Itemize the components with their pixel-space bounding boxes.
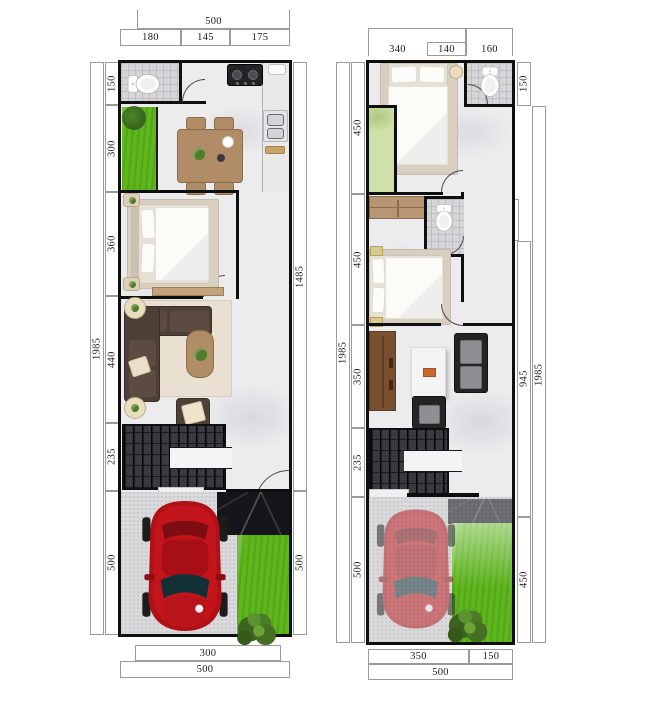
dim-top-seg: 140 <box>427 42 466 56</box>
dim-right-seg: 450 <box>517 517 531 643</box>
bed-duvet <box>388 86 448 165</box>
dim-left-seg: 500 <box>351 497 365 643</box>
pillow <box>371 258 385 285</box>
table-decor <box>423 368 436 377</box>
dim-right-seg: 945 <box>517 241 531 517</box>
interior-wall <box>369 192 443 195</box>
dim-left-overall: 1985 <box>336 62 350 643</box>
dim-left-seg: 450 <box>351 194 365 325</box>
interior-wall <box>424 196 464 199</box>
wardrobe <box>369 196 427 219</box>
pillow <box>391 65 418 83</box>
nightstand <box>370 246 383 256</box>
porch-roof-below <box>448 499 512 524</box>
bedside-stool <box>449 65 463 79</box>
dim-top-seg: 160 <box>466 28 513 56</box>
planter-strip <box>369 107 396 192</box>
toilet-icon <box>434 203 454 233</box>
dim-left-seg: 235 <box>351 428 365 497</box>
armchair <box>412 396 446 429</box>
dim-bottom-overall: 500 <box>368 664 513 680</box>
toilet-icon <box>479 65 501 99</box>
dim-right-seg: 150 <box>517 62 531 106</box>
cabinet <box>369 331 396 411</box>
dim-left-seg: 350 <box>351 325 365 428</box>
stair-landing <box>404 450 462 472</box>
interior-wall <box>369 105 397 108</box>
interior-wall <box>463 323 512 326</box>
dim-bottom-seg: 350 <box>368 649 469 664</box>
interior-wall <box>394 107 397 192</box>
dim-left-seg: 450 <box>351 62 365 194</box>
tree-icon <box>444 606 492 646</box>
table <box>411 347 446 397</box>
interior-wall <box>407 493 479 497</box>
black-sofa <box>454 333 488 393</box>
interior-wall <box>369 323 441 326</box>
bed-duvet <box>385 257 443 319</box>
dim-bottom-seg: 150 <box>469 649 513 664</box>
pillow <box>371 287 385 314</box>
dim-right-overall: 1985 <box>532 106 546 643</box>
upper-floor-plan: 340 140 160 1985 450 450 350 235 500 150… <box>0 0 669 720</box>
pillow <box>419 66 446 84</box>
interior-wall <box>464 63 467 107</box>
floorplan-canvas: 500 180 145 175 1985 150 300 360 440 235… <box>0 0 669 720</box>
interior-wall <box>464 104 512 107</box>
